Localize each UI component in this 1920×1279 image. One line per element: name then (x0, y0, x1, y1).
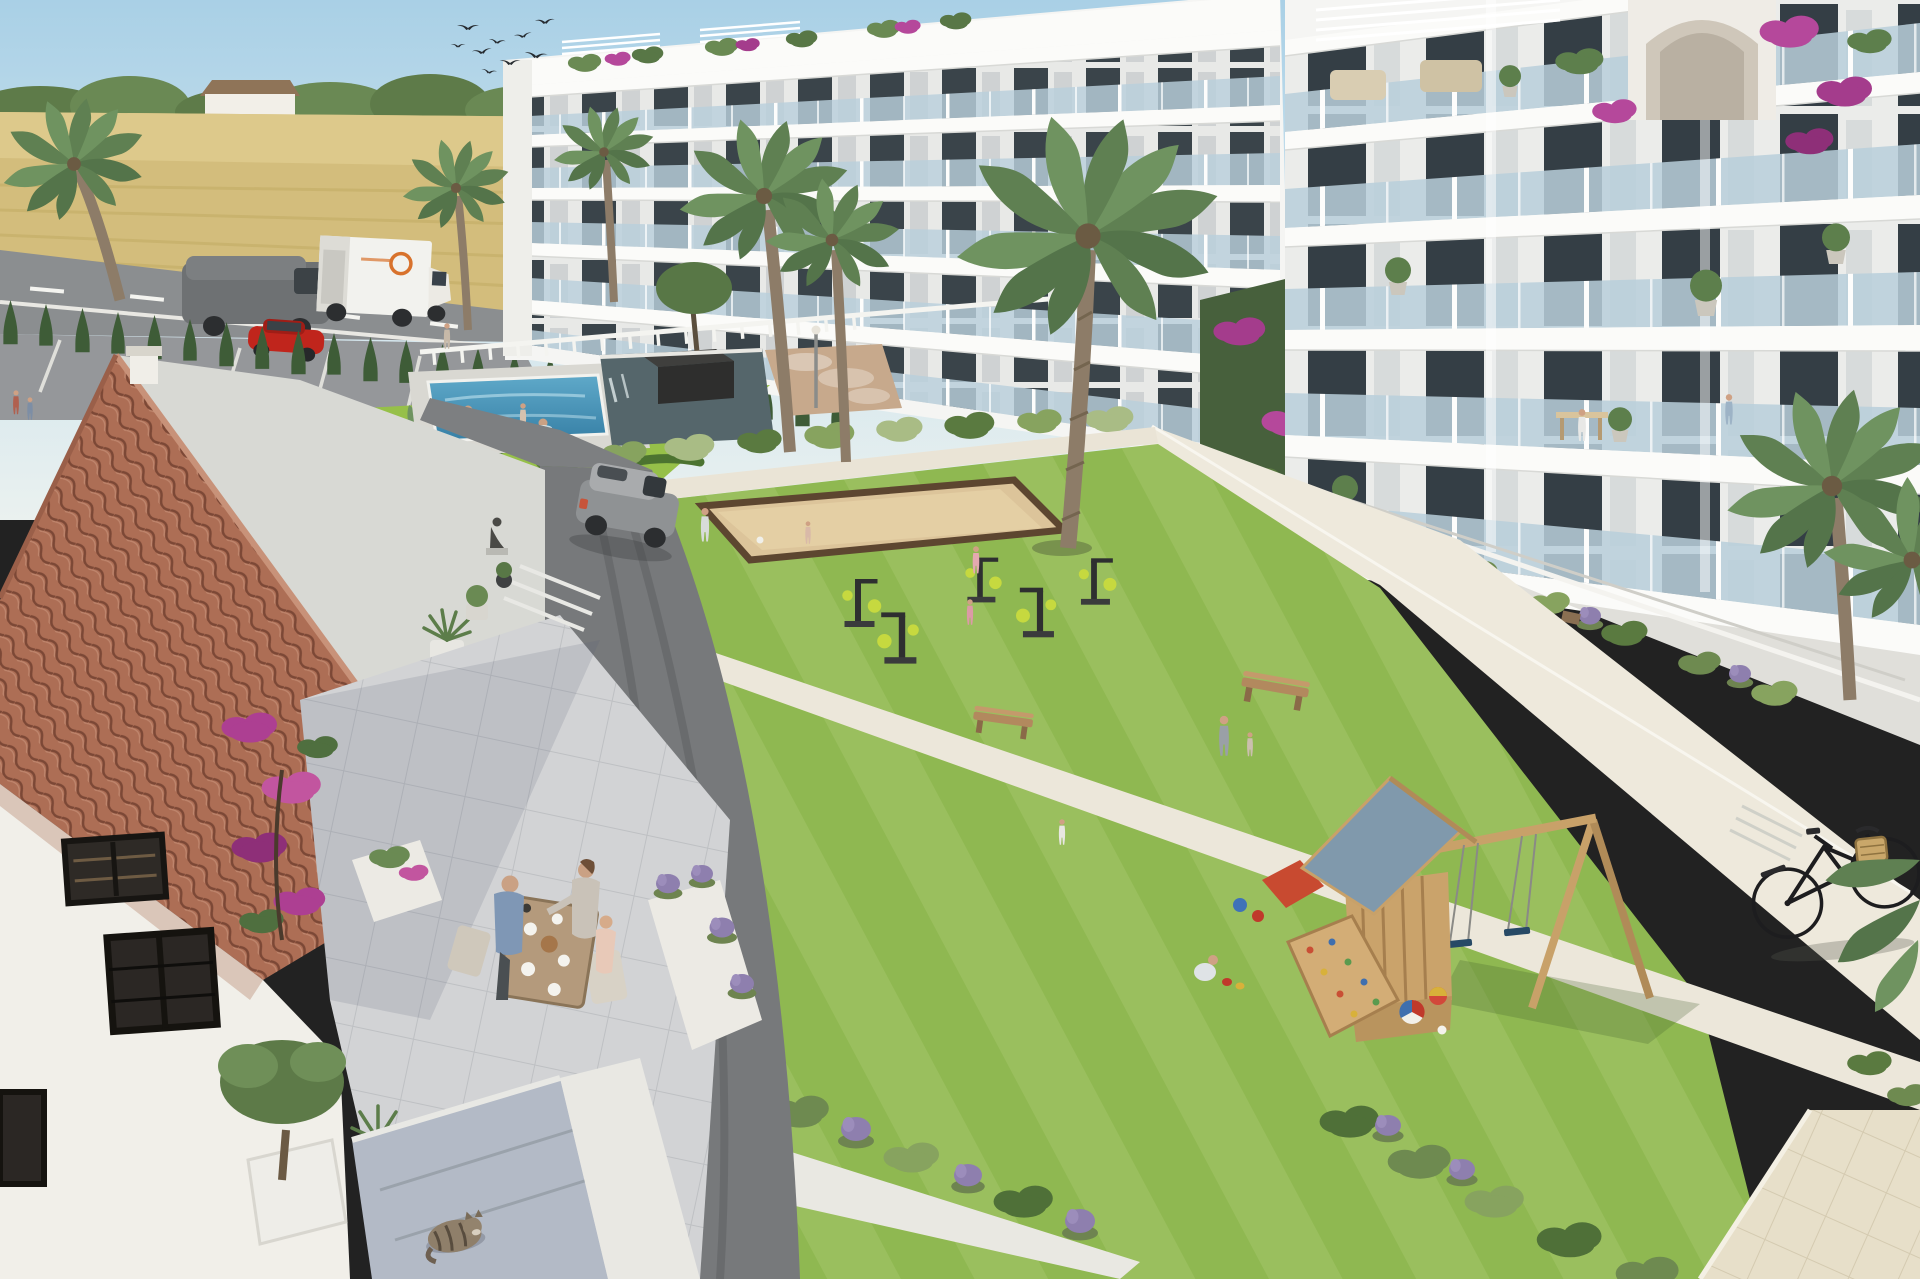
house-side-window (0, 1092, 44, 1184)
chimney (126, 346, 162, 384)
house-window-shelves (64, 835, 166, 904)
house-french-door (107, 930, 217, 1031)
blue-bucket (1233, 898, 1247, 912)
rendered-scene (0, 0, 1920, 1279)
ball (757, 537, 764, 544)
red-bucket (1252, 910, 1264, 922)
farmhouse (200, 80, 300, 118)
arch-stair-tower (1628, 0, 1776, 120)
